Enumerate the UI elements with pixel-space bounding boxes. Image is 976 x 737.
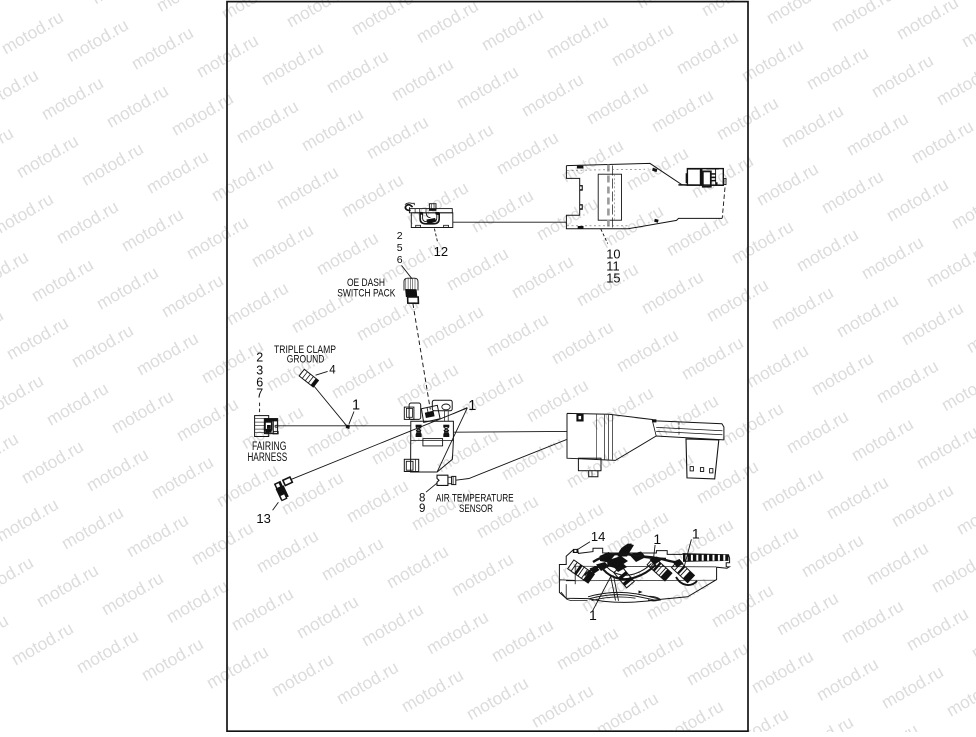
svg-text:6: 6 [397, 254, 403, 266]
svg-text:SENSOR: SENSOR [459, 502, 493, 514]
svg-text:4: 4 [329, 364, 336, 376]
svg-text:1: 1 [653, 531, 661, 547]
svg-text:9: 9 [419, 503, 425, 515]
svg-text:1: 1 [468, 398, 476, 414]
svg-text:15: 15 [606, 271, 620, 286]
svg-text:2: 2 [397, 230, 403, 242]
svg-text:1: 1 [352, 397, 360, 413]
svg-text:7: 7 [256, 387, 263, 401]
svg-text:13: 13 [256, 511, 270, 526]
svg-text:12: 12 [434, 244, 448, 259]
svg-text:1: 1 [692, 525, 700, 541]
svg-text:5: 5 [397, 242, 403, 254]
svg-text:14: 14 [591, 529, 605, 544]
svg-text:GROUND: GROUND [287, 353, 325, 365]
svg-text:SWITCH PACK: SWITCH PACK [337, 288, 396, 300]
svg-text:HARNESS: HARNESS [247, 452, 287, 465]
